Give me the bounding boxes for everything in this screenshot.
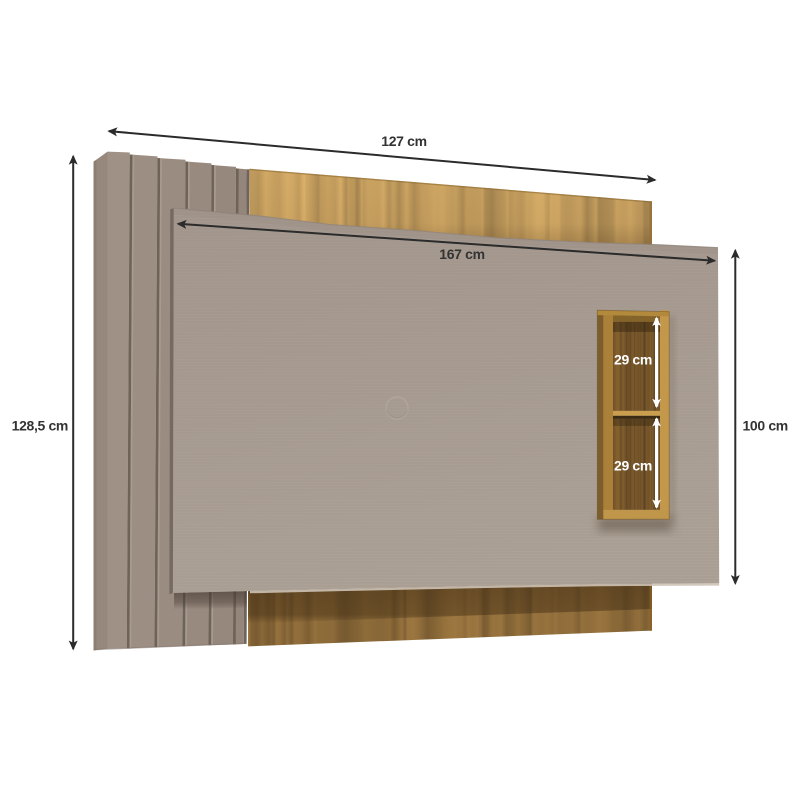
svg-text:127 cm: 127 cm (381, 133, 426, 149)
svg-text:128,5 cm: 128,5 cm (12, 417, 68, 433)
svg-text:29 cm: 29 cm (614, 351, 652, 367)
svg-text:167 cm: 167 cm (439, 246, 484, 262)
svg-text:100 cm: 100 cm (743, 417, 788, 433)
svg-text:29 cm: 29 cm (614, 458, 652, 474)
